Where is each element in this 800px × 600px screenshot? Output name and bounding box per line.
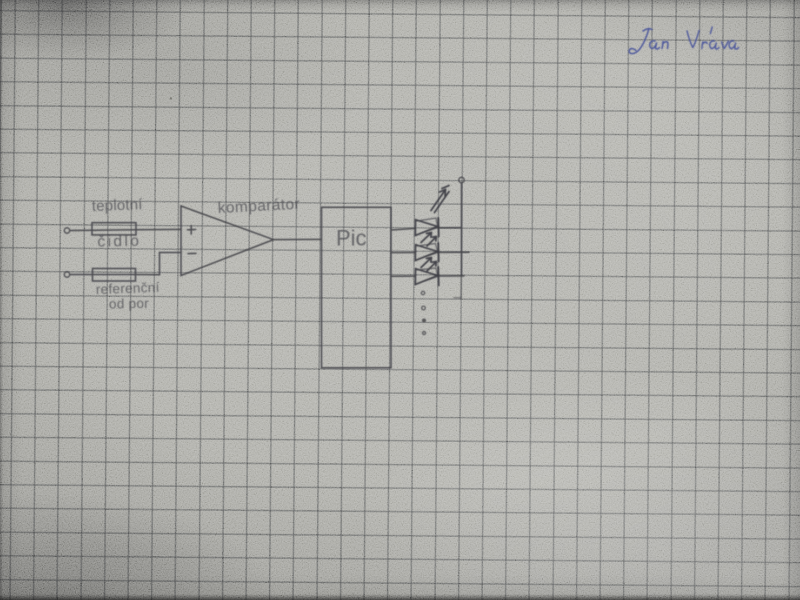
svg-text:čidlo: čidlo xyxy=(97,233,141,251)
svg-text:teplotní: teplotní xyxy=(92,196,144,215)
svg-text:od por: od por xyxy=(109,296,150,312)
svg-text:referenční: referenční xyxy=(96,280,160,297)
svg-text:Pic: Pic xyxy=(336,226,367,251)
svg-text:komparátor: komparátor xyxy=(217,196,300,217)
